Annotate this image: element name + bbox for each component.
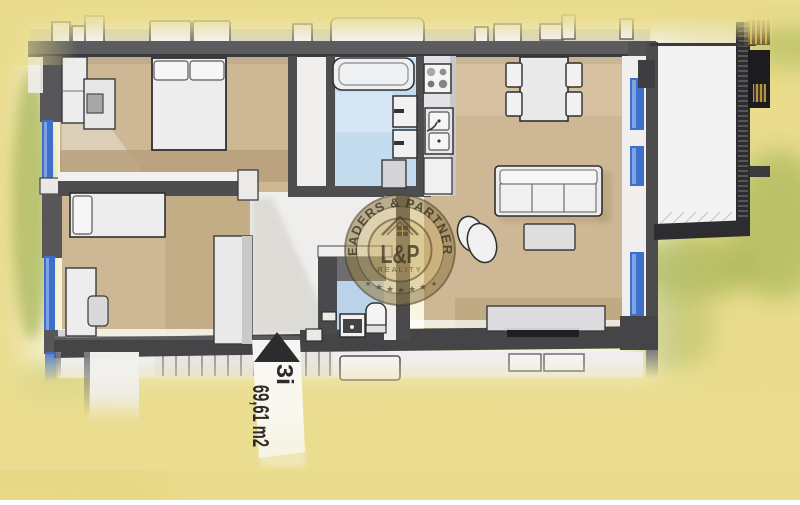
svg-text:★: ★ xyxy=(419,282,427,292)
svg-text:REALITY: REALITY xyxy=(377,265,422,274)
svg-text:★: ★ xyxy=(408,284,416,294)
svg-text:★: ★ xyxy=(397,285,405,295)
svg-text:69,61 m2: 69,61 m2 xyxy=(248,385,274,447)
svg-text:3i: 3i xyxy=(272,364,298,385)
svg-text:★: ★ xyxy=(375,282,383,292)
svg-text:★: ★ xyxy=(365,280,371,288)
svg-text:★: ★ xyxy=(431,280,437,288)
svg-text:★: ★ xyxy=(386,284,394,294)
